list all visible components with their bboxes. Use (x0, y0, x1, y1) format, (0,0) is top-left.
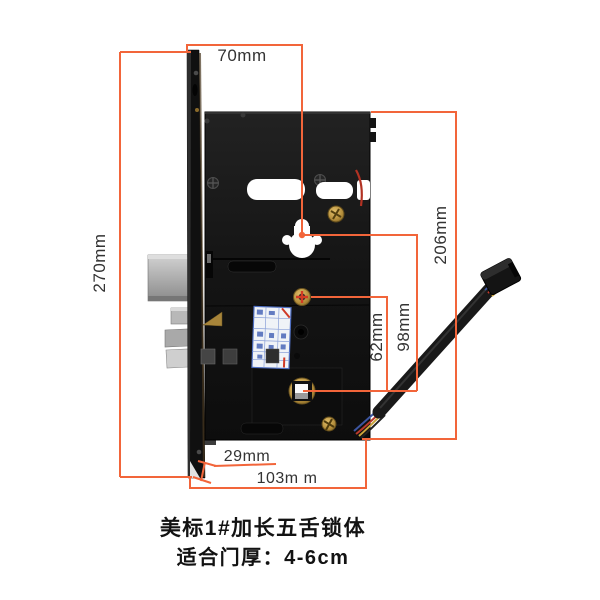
dim-label-103mm: 103m m (247, 470, 327, 488)
door-thickness-note: 适合门厚：4-6cm (63, 541, 463, 570)
dim-label-29mm: 29mm (212, 448, 282, 466)
keyhole-center-dot (299, 232, 305, 238)
dim-line-206mm (362, 112, 456, 439)
brass-screw-lower (322, 417, 336, 431)
lock-illustration (0, 0, 600, 600)
product-title: 美标1#加长五舌锁体 (63, 512, 463, 542)
dim-label-206mm: 206mm (432, 195, 450, 275)
faceplate (187, 50, 205, 478)
deadbolt (148, 255, 188, 301)
brass-screw-upper (328, 206, 344, 222)
dim-label-98mm: 98mm (395, 292, 413, 362)
cylinder-screw-red-cross (294, 289, 311, 306)
dim-label-270mm: 270mm (91, 223, 109, 303)
dim-label-70mm: 70mm (207, 47, 277, 65)
case-screw-left (208, 178, 219, 189)
dim-label-62mm: 62mm (368, 302, 386, 372)
product-image: 70mm 270mm 206mm 98mm 62mm 29mm 103m m 美… (0, 0, 600, 600)
